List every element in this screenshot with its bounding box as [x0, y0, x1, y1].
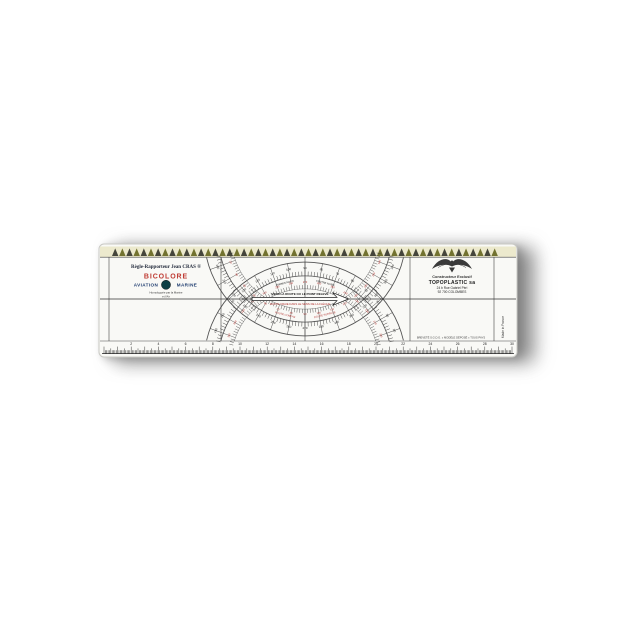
address-line-2: 92 700 COLOMBES [438, 290, 467, 294]
aviation-label: AVIATION [134, 283, 159, 288]
mm-number: 20 [374, 342, 378, 346]
brand-dot [161, 280, 170, 289]
constructor-line: Constructeur Exclusif [432, 275, 472, 279]
mm-number: 18 [347, 342, 351, 346]
mm-number: 10 [238, 342, 242, 346]
mm-number: 28 [483, 342, 487, 346]
mm-number: 4 [157, 342, 159, 346]
address-line-1: 24 b Rue Gabriel Péri [437, 286, 468, 290]
mm-number: 12 [265, 342, 269, 346]
mm-number: 8 [212, 342, 214, 346]
arrow-label-bottom: ROUTE VRAIE DANS LE SENS DE LA FLÈCHE [270, 301, 331, 306]
product-photo: 2020030210402205023060240702508026090270… [0, 0, 640, 640]
mm-number: 30 [510, 342, 514, 346]
arrow-label-top: VERS LA ROUTE OU LE POINT RELEVÉ [271, 291, 328, 296]
product-title: Règle-Rapporteur Jean CRAS ® [131, 264, 201, 270]
mm-number: 22 [401, 342, 405, 346]
mm-number: 2 [130, 342, 132, 346]
mm-number: 16 [320, 342, 324, 346]
mm-number: 6 [185, 342, 187, 346]
marine-label: MARINE [177, 283, 198, 288]
mm-number: 24 [429, 342, 433, 346]
approval-text-2: et l'Air [162, 295, 170, 299]
mm-number: 14 [293, 342, 297, 346]
ruler-photo: 2020030210402205023060240702508026090270… [0, 0, 640, 640]
bicolore-label: BICOLORE [144, 274, 188, 281]
mm-number: 26 [456, 342, 460, 346]
made-in-france-label: Made in France [501, 316, 505, 338]
